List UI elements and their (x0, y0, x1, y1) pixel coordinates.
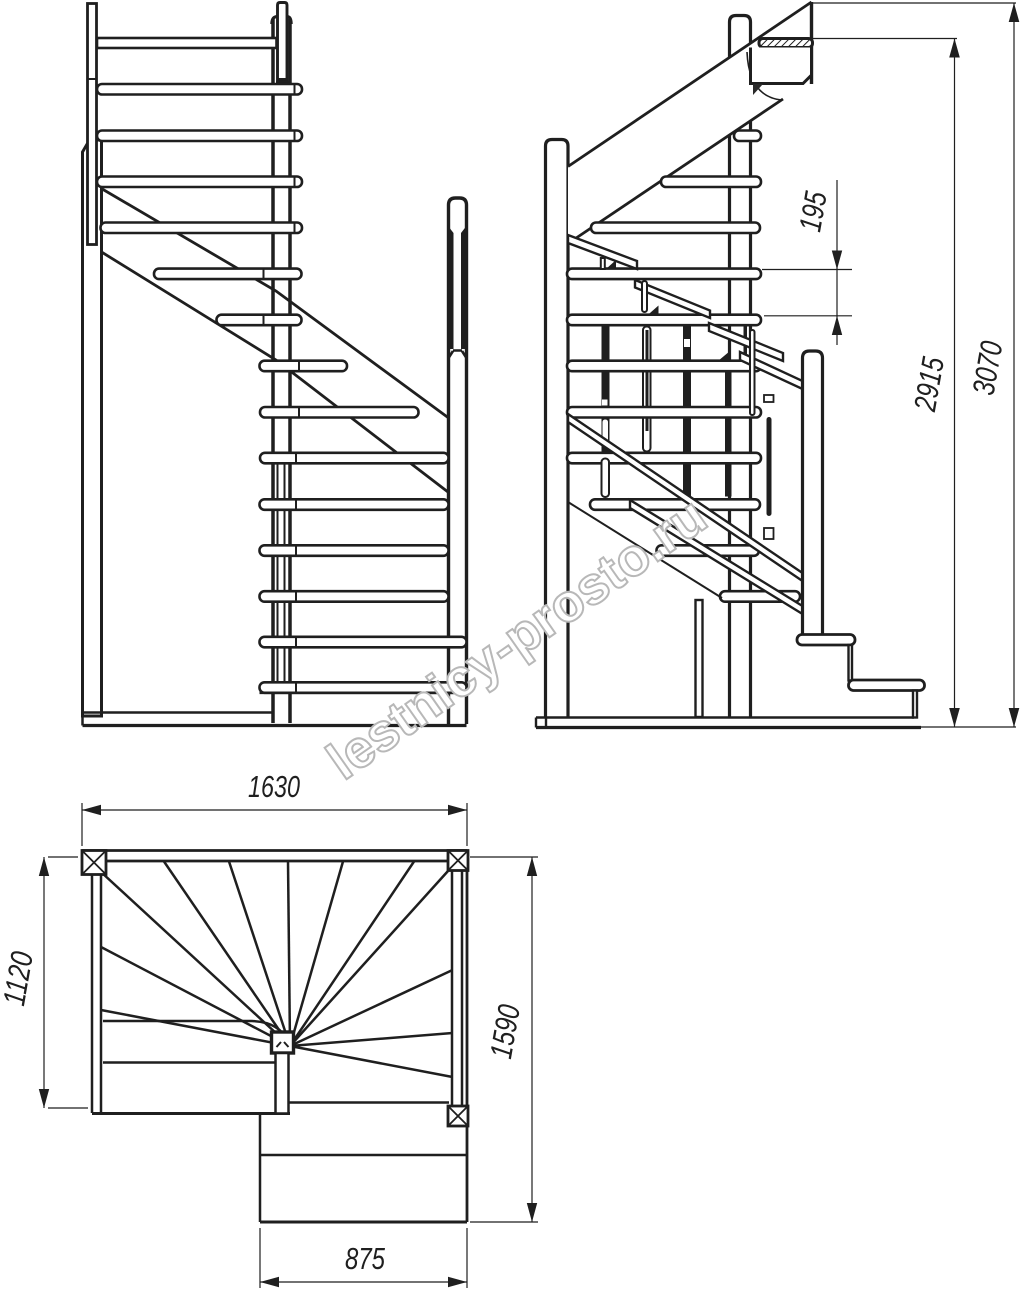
svg-text:875: 875 (345, 1241, 386, 1276)
svg-text:195: 195 (792, 188, 834, 234)
svg-text:1630: 1630 (248, 769, 300, 804)
